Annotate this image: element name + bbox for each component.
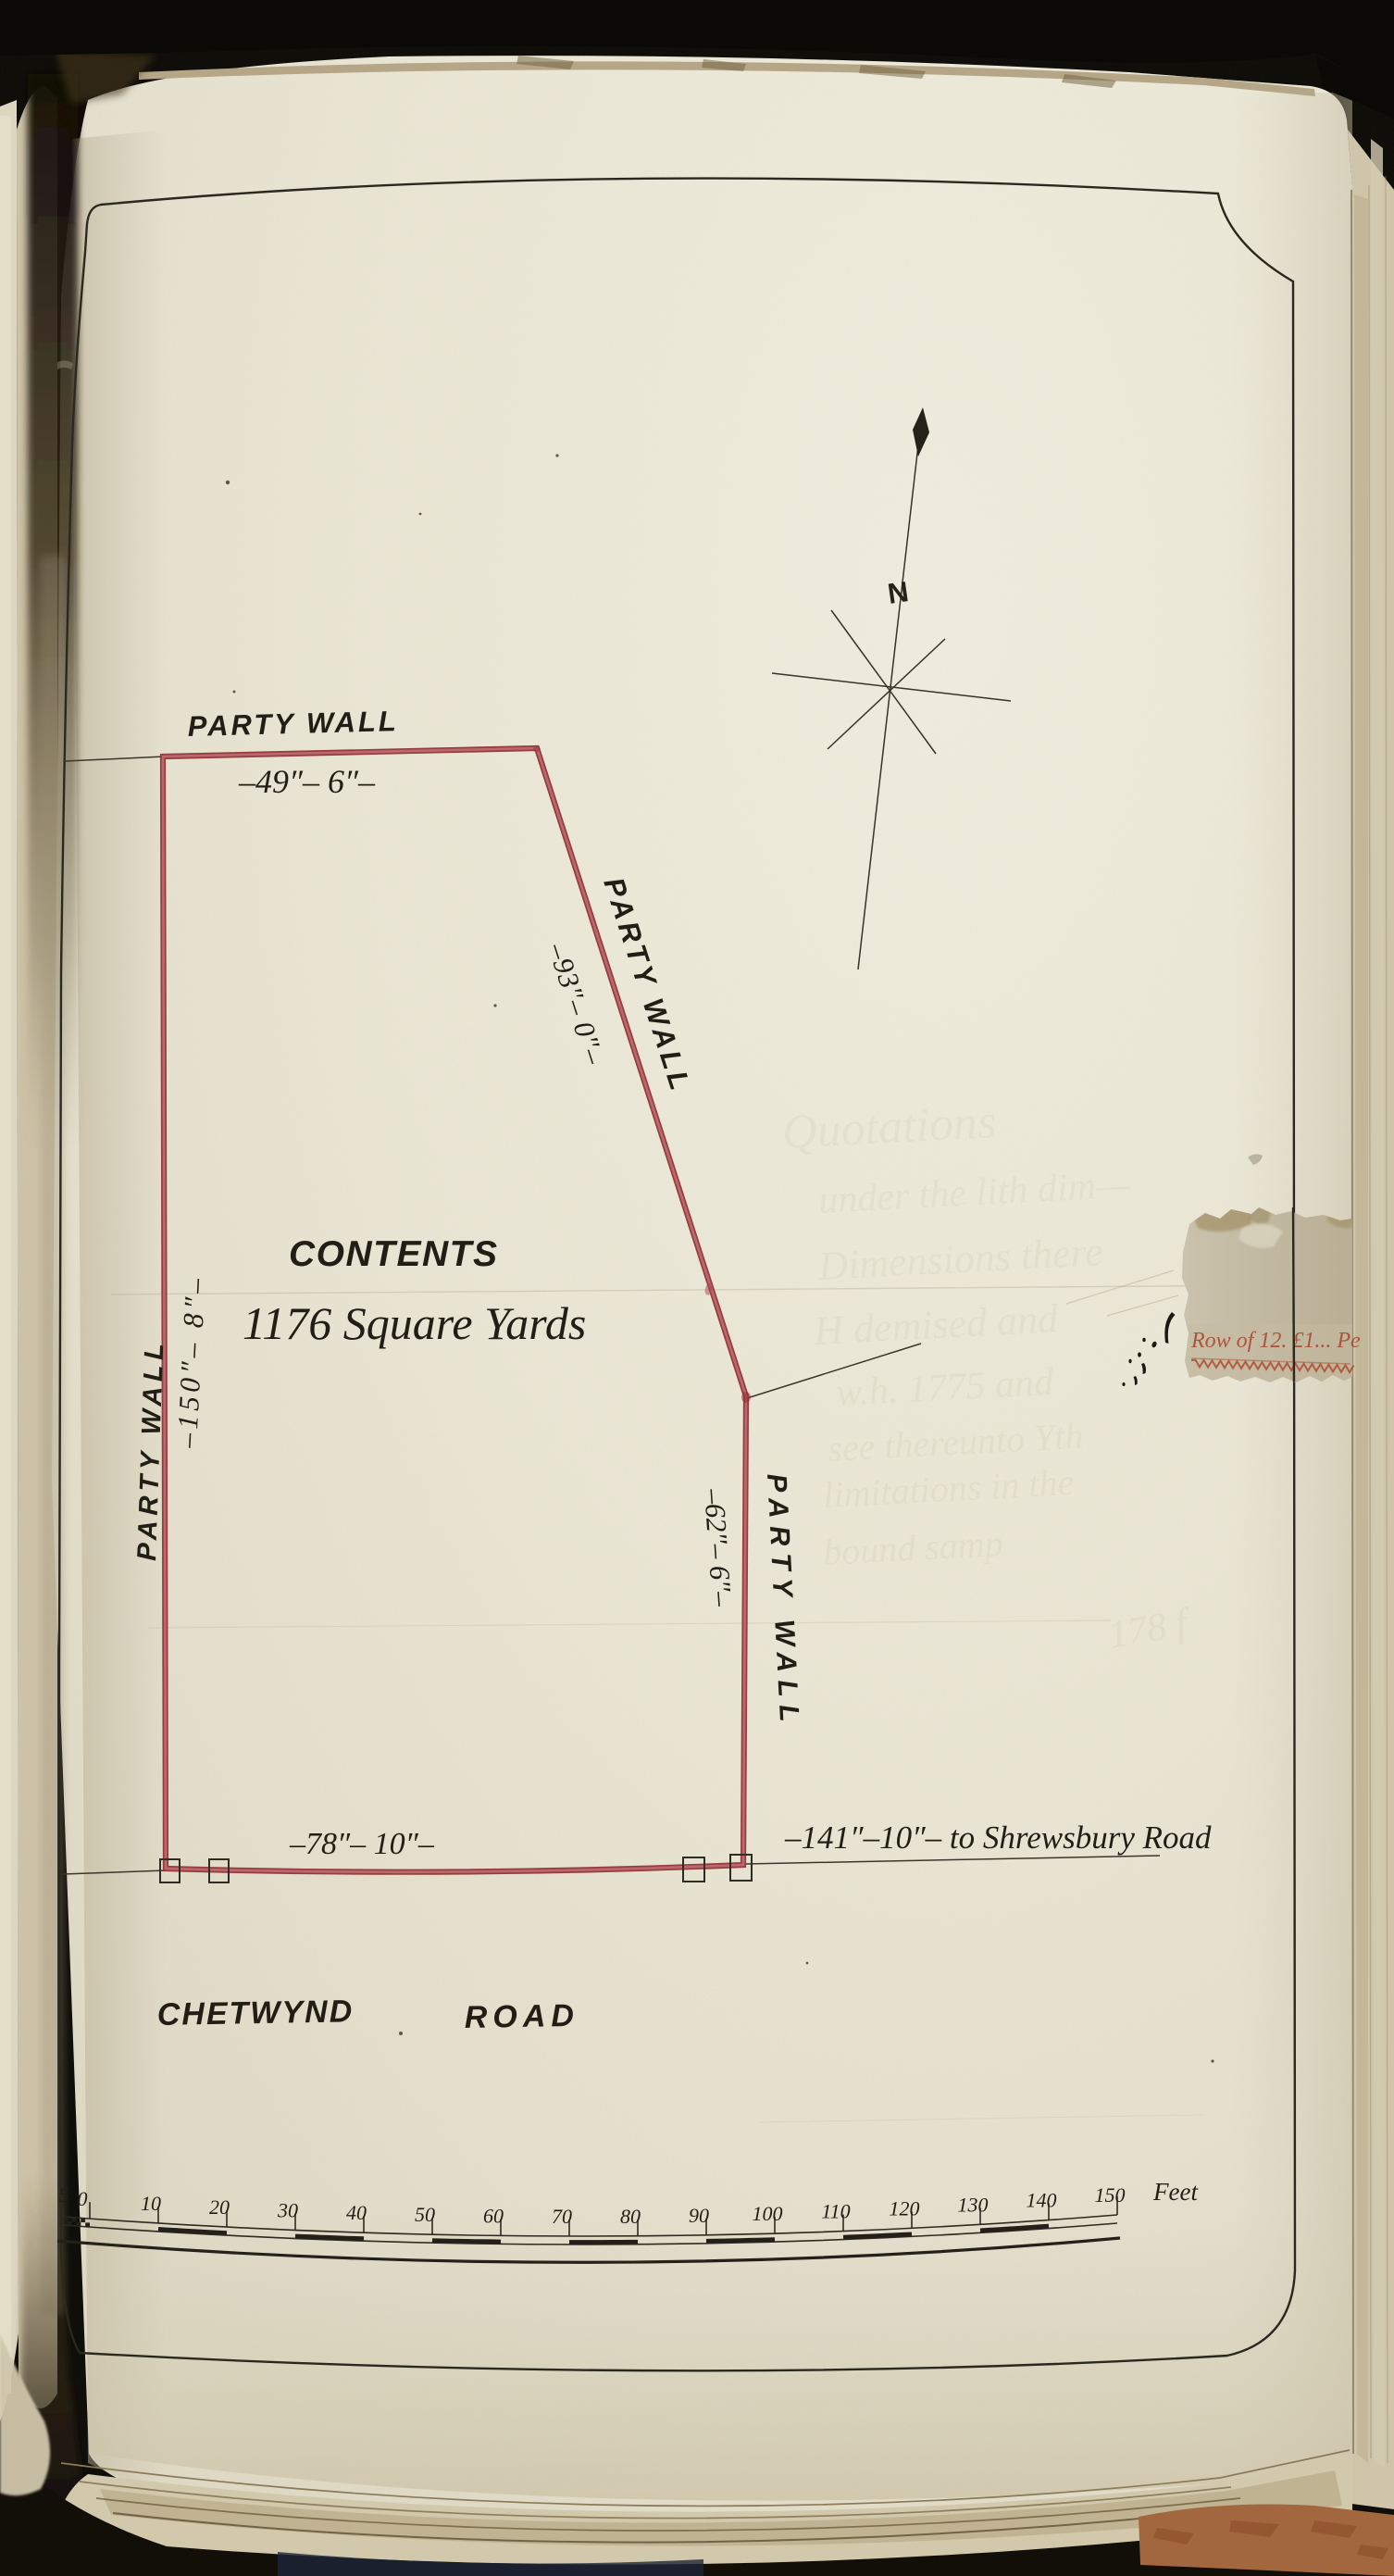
svg-text:CONTENTS: CONTENTS: [289, 1234, 499, 1274]
svg-text:PARTY WALL: PARTY WALL: [187, 705, 399, 743]
svg-text:CHETWYND: CHETWYND: [156, 1994, 354, 2032]
svg-text:120: 120: [890, 2196, 920, 2220]
svg-text:90: 90: [689, 2204, 709, 2227]
svg-text:Quotations: Quotations: [781, 1095, 998, 1159]
svg-text:Row of 12. £1... Pe: Row of 12. £1... Pe: [1190, 1329, 1361, 1353]
svg-text:40: 40: [346, 2201, 367, 2224]
svg-text:130: 130: [958, 2193, 989, 2216]
svg-text:150: 150: [1095, 2183, 1126, 2207]
svg-text:–49″– 6″–: –49″– 6″–: [238, 763, 376, 800]
svg-text:Feet: Feet: [1152, 2178, 1199, 2206]
svg-text:100: 100: [753, 2202, 783, 2225]
svg-text:0: 0: [78, 2187, 88, 2210]
svg-text:110: 110: [821, 2200, 850, 2223]
svg-text:–141″–10″– to Shrewsbury Road: –141″–10″– to Shrewsbury Road: [784, 1819, 1212, 1856]
svg-text:140: 140: [1027, 2189, 1057, 2212]
svg-text:20: 20: [209, 2195, 230, 2219]
svg-text:60: 60: [483, 2205, 504, 2228]
svg-text:–78″– 10″–: –78″– 10″–: [289, 1827, 435, 1861]
svg-text:80: 80: [620, 2205, 641, 2228]
svg-text:50: 50: [415, 2203, 435, 2226]
svg-text:1176 Square Yards: 1176 Square Yards: [243, 1297, 586, 1349]
svg-text:ROAD: ROAD: [464, 1998, 579, 2035]
svg-text:10: 10: [141, 2192, 161, 2215]
svg-text:70: 70: [552, 2205, 572, 2228]
svg-text:30: 30: [277, 2199, 298, 2222]
svg-text:5: 5: [59, 2183, 69, 2207]
